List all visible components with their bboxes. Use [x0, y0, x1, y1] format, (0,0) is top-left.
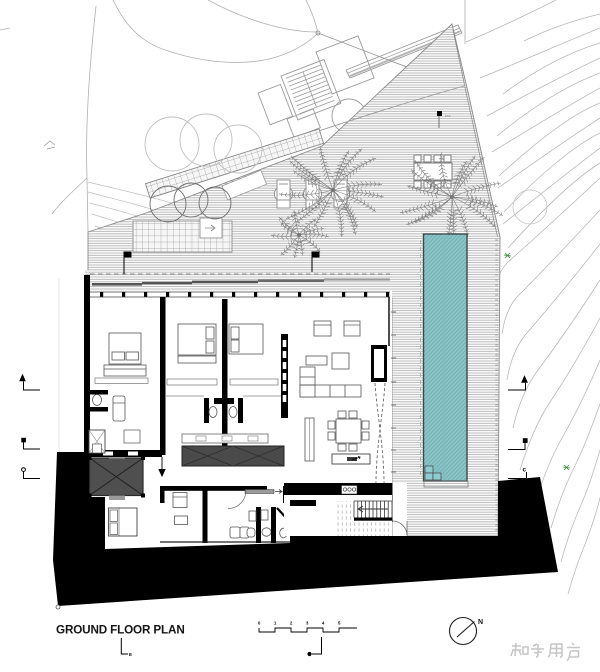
- svg-text:E: E: [129, 652, 132, 657]
- svg-text:GROUND FLOOR PLAN: GROUND FLOOR PLAN: [56, 624, 185, 637]
- svg-text:N: N: [478, 619, 483, 626]
- svg-text:esc: esc: [445, 114, 451, 118]
- svg-text:c: c: [523, 467, 527, 474]
